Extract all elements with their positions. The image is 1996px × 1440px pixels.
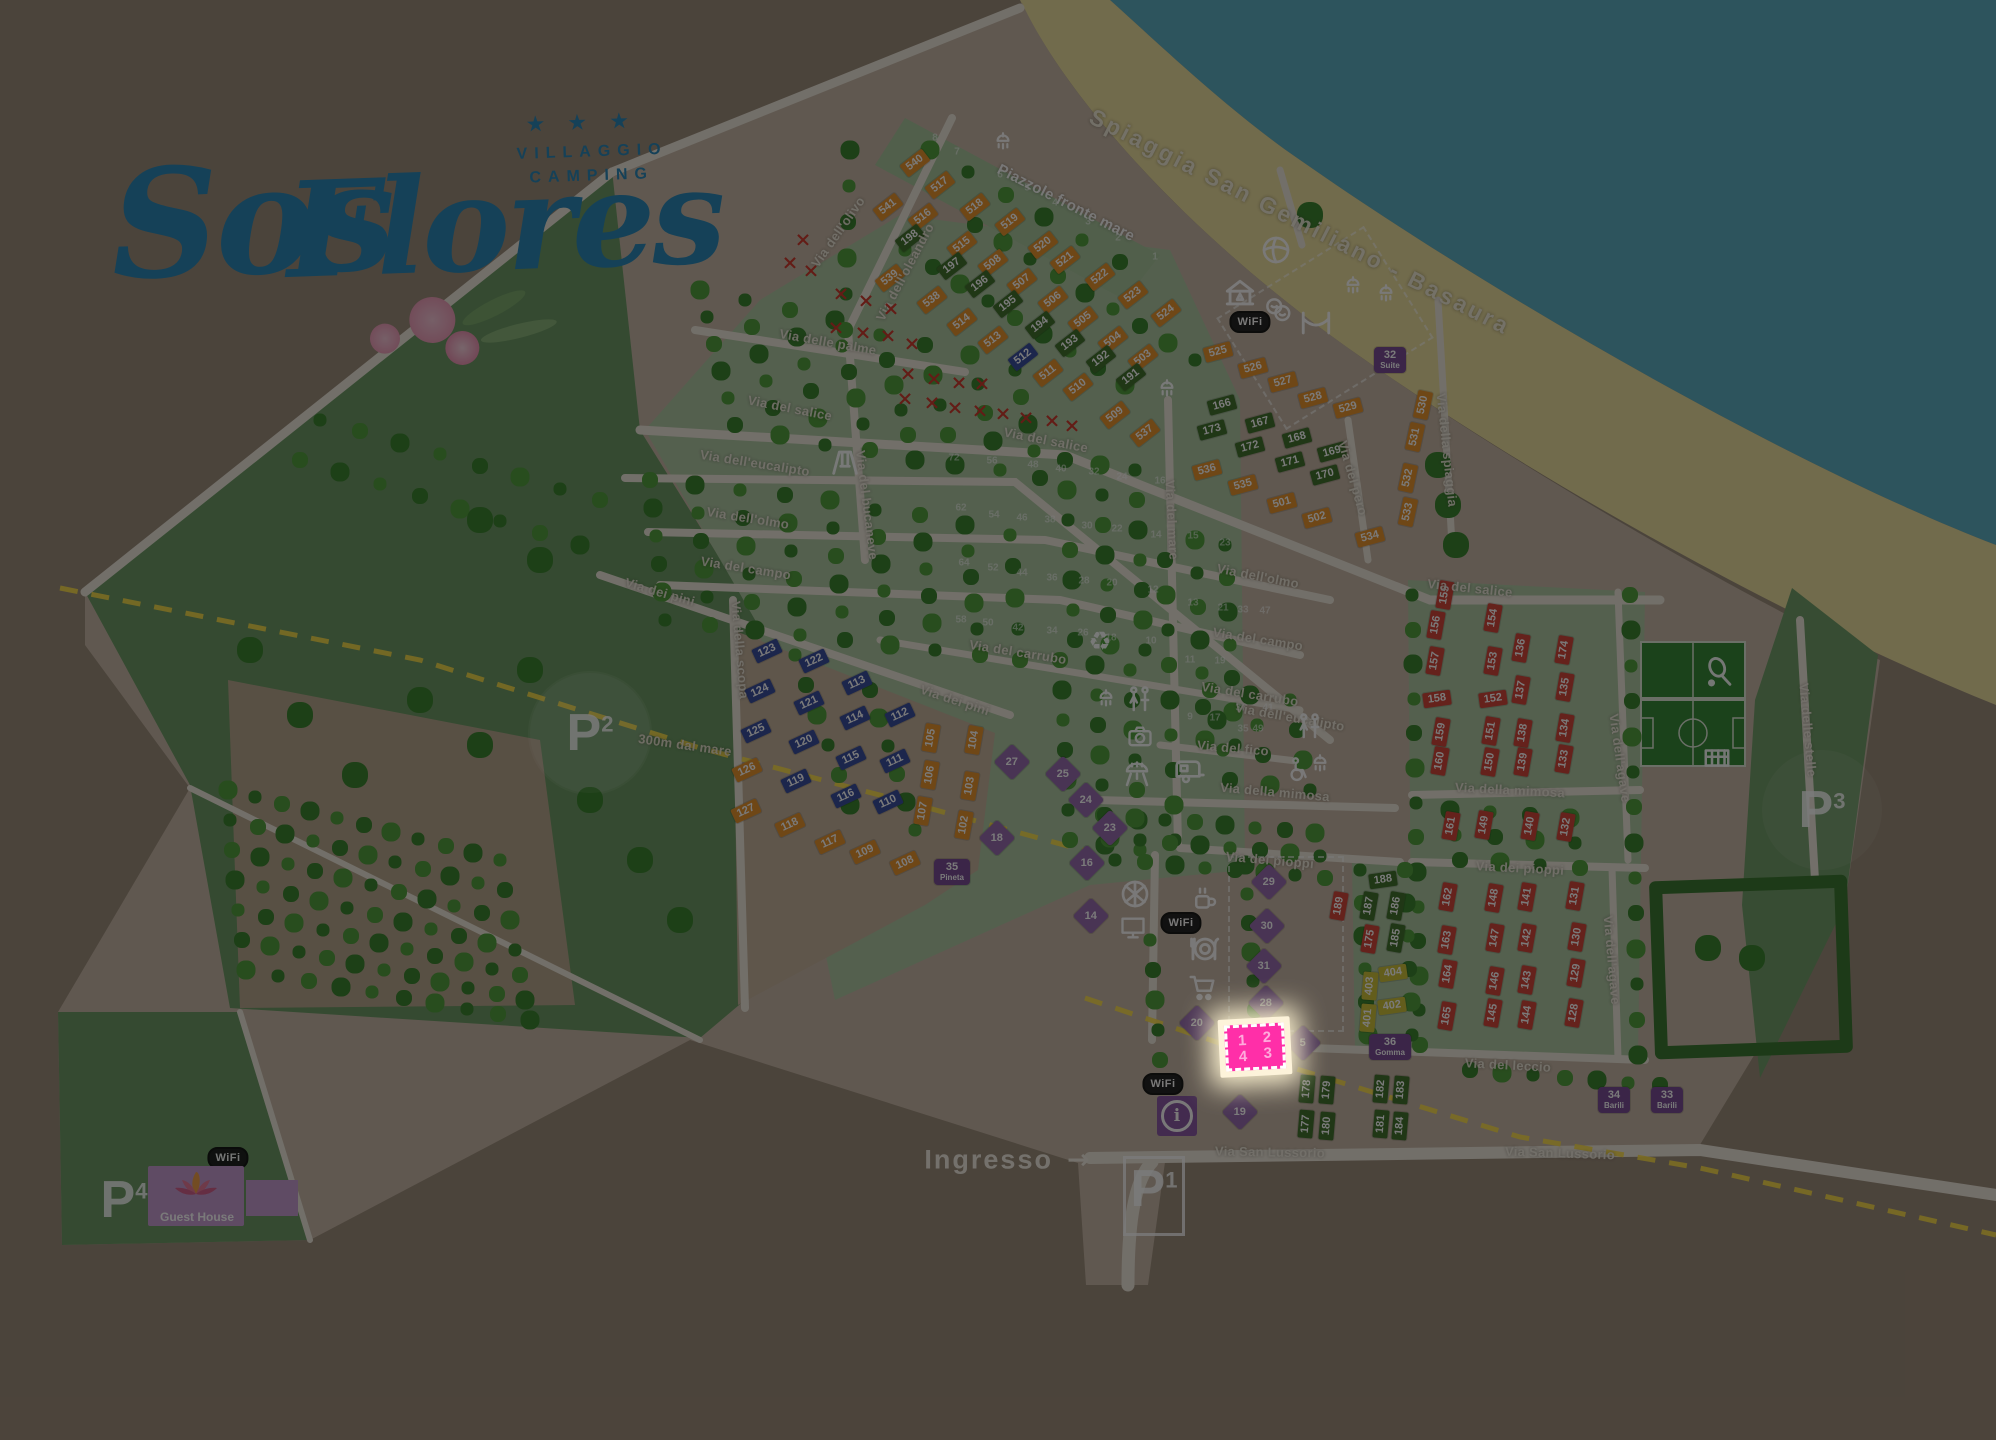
shower-icon (1373, 282, 1399, 308)
wifi-icon: WiFi (1142, 1073, 1183, 1095)
wheelchair-icon (1284, 756, 1312, 784)
highlight-area[interactable]: 1243 (1224, 1022, 1286, 1071)
highlight-number-2: 2 (1262, 1029, 1271, 1046)
guest-house-annex (246, 1180, 298, 1216)
playground-icon (828, 445, 862, 479)
entrance-label: Ingresso→ (924, 1145, 1085, 1176)
caravan-icon (1174, 755, 1206, 787)
restaurant-icon (1188, 932, 1222, 966)
beach-bar-icon (1223, 277, 1257, 311)
guest-house: Guest House (148, 1166, 244, 1226)
recycle-icon: ♻ (1088, 627, 1111, 657)
hammock-icon (1299, 306, 1333, 340)
shower-icon (990, 130, 1016, 156)
highlight-number-1: 1 (1238, 1032, 1247, 1049)
guest-house-label: Guest House (142, 1210, 252, 1224)
goal-icon (1702, 743, 1732, 773)
coffee-icon (1190, 885, 1220, 915)
highlight-number-3: 3 (1263, 1045, 1272, 1062)
toilets-family-icon (1295, 712, 1325, 742)
entrance-arrow-icon: → (1067, 1145, 1086, 1176)
flower-icon (369, 323, 400, 354)
camping-map: 5405175415165185195155085205215225235245… (0, 0, 1996, 1440)
logo-stars: ★ ★ ★ (525, 108, 637, 138)
shower-icon (1340, 274, 1366, 300)
pizza-icon (1119, 878, 1151, 910)
info-icon: i (1157, 1096, 1197, 1136)
lotus-icon (169, 1168, 223, 1202)
logo: Sos Flores ★ ★ ★ VILLAGGIO CAMPING (106, 78, 697, 428)
wifi-icon: WiFi (1160, 912, 1201, 934)
shower-icon (1154, 377, 1180, 403)
logo-script-flores: Flores (283, 139, 724, 309)
entrance-text: Ingresso (924, 1145, 1053, 1175)
shopping-cart-icon (1187, 972, 1217, 1002)
bbq-icon (1122, 760, 1152, 790)
theater-masks-icon (1263, 295, 1293, 325)
toilets-family-icon (1125, 685, 1155, 715)
shower-icon (1093, 687, 1119, 713)
highlighted-plot[interactable]: 1243 (1224, 1022, 1286, 1071)
tennis-icon (1703, 656, 1737, 690)
leaf-icon (479, 315, 558, 347)
volleyball-icon (1260, 234, 1292, 266)
flower-icon (445, 330, 480, 365)
camera-icon (1126, 723, 1154, 751)
screen-icon (1119, 914, 1147, 942)
highlight-number-4: 4 (1238, 1048, 1247, 1065)
